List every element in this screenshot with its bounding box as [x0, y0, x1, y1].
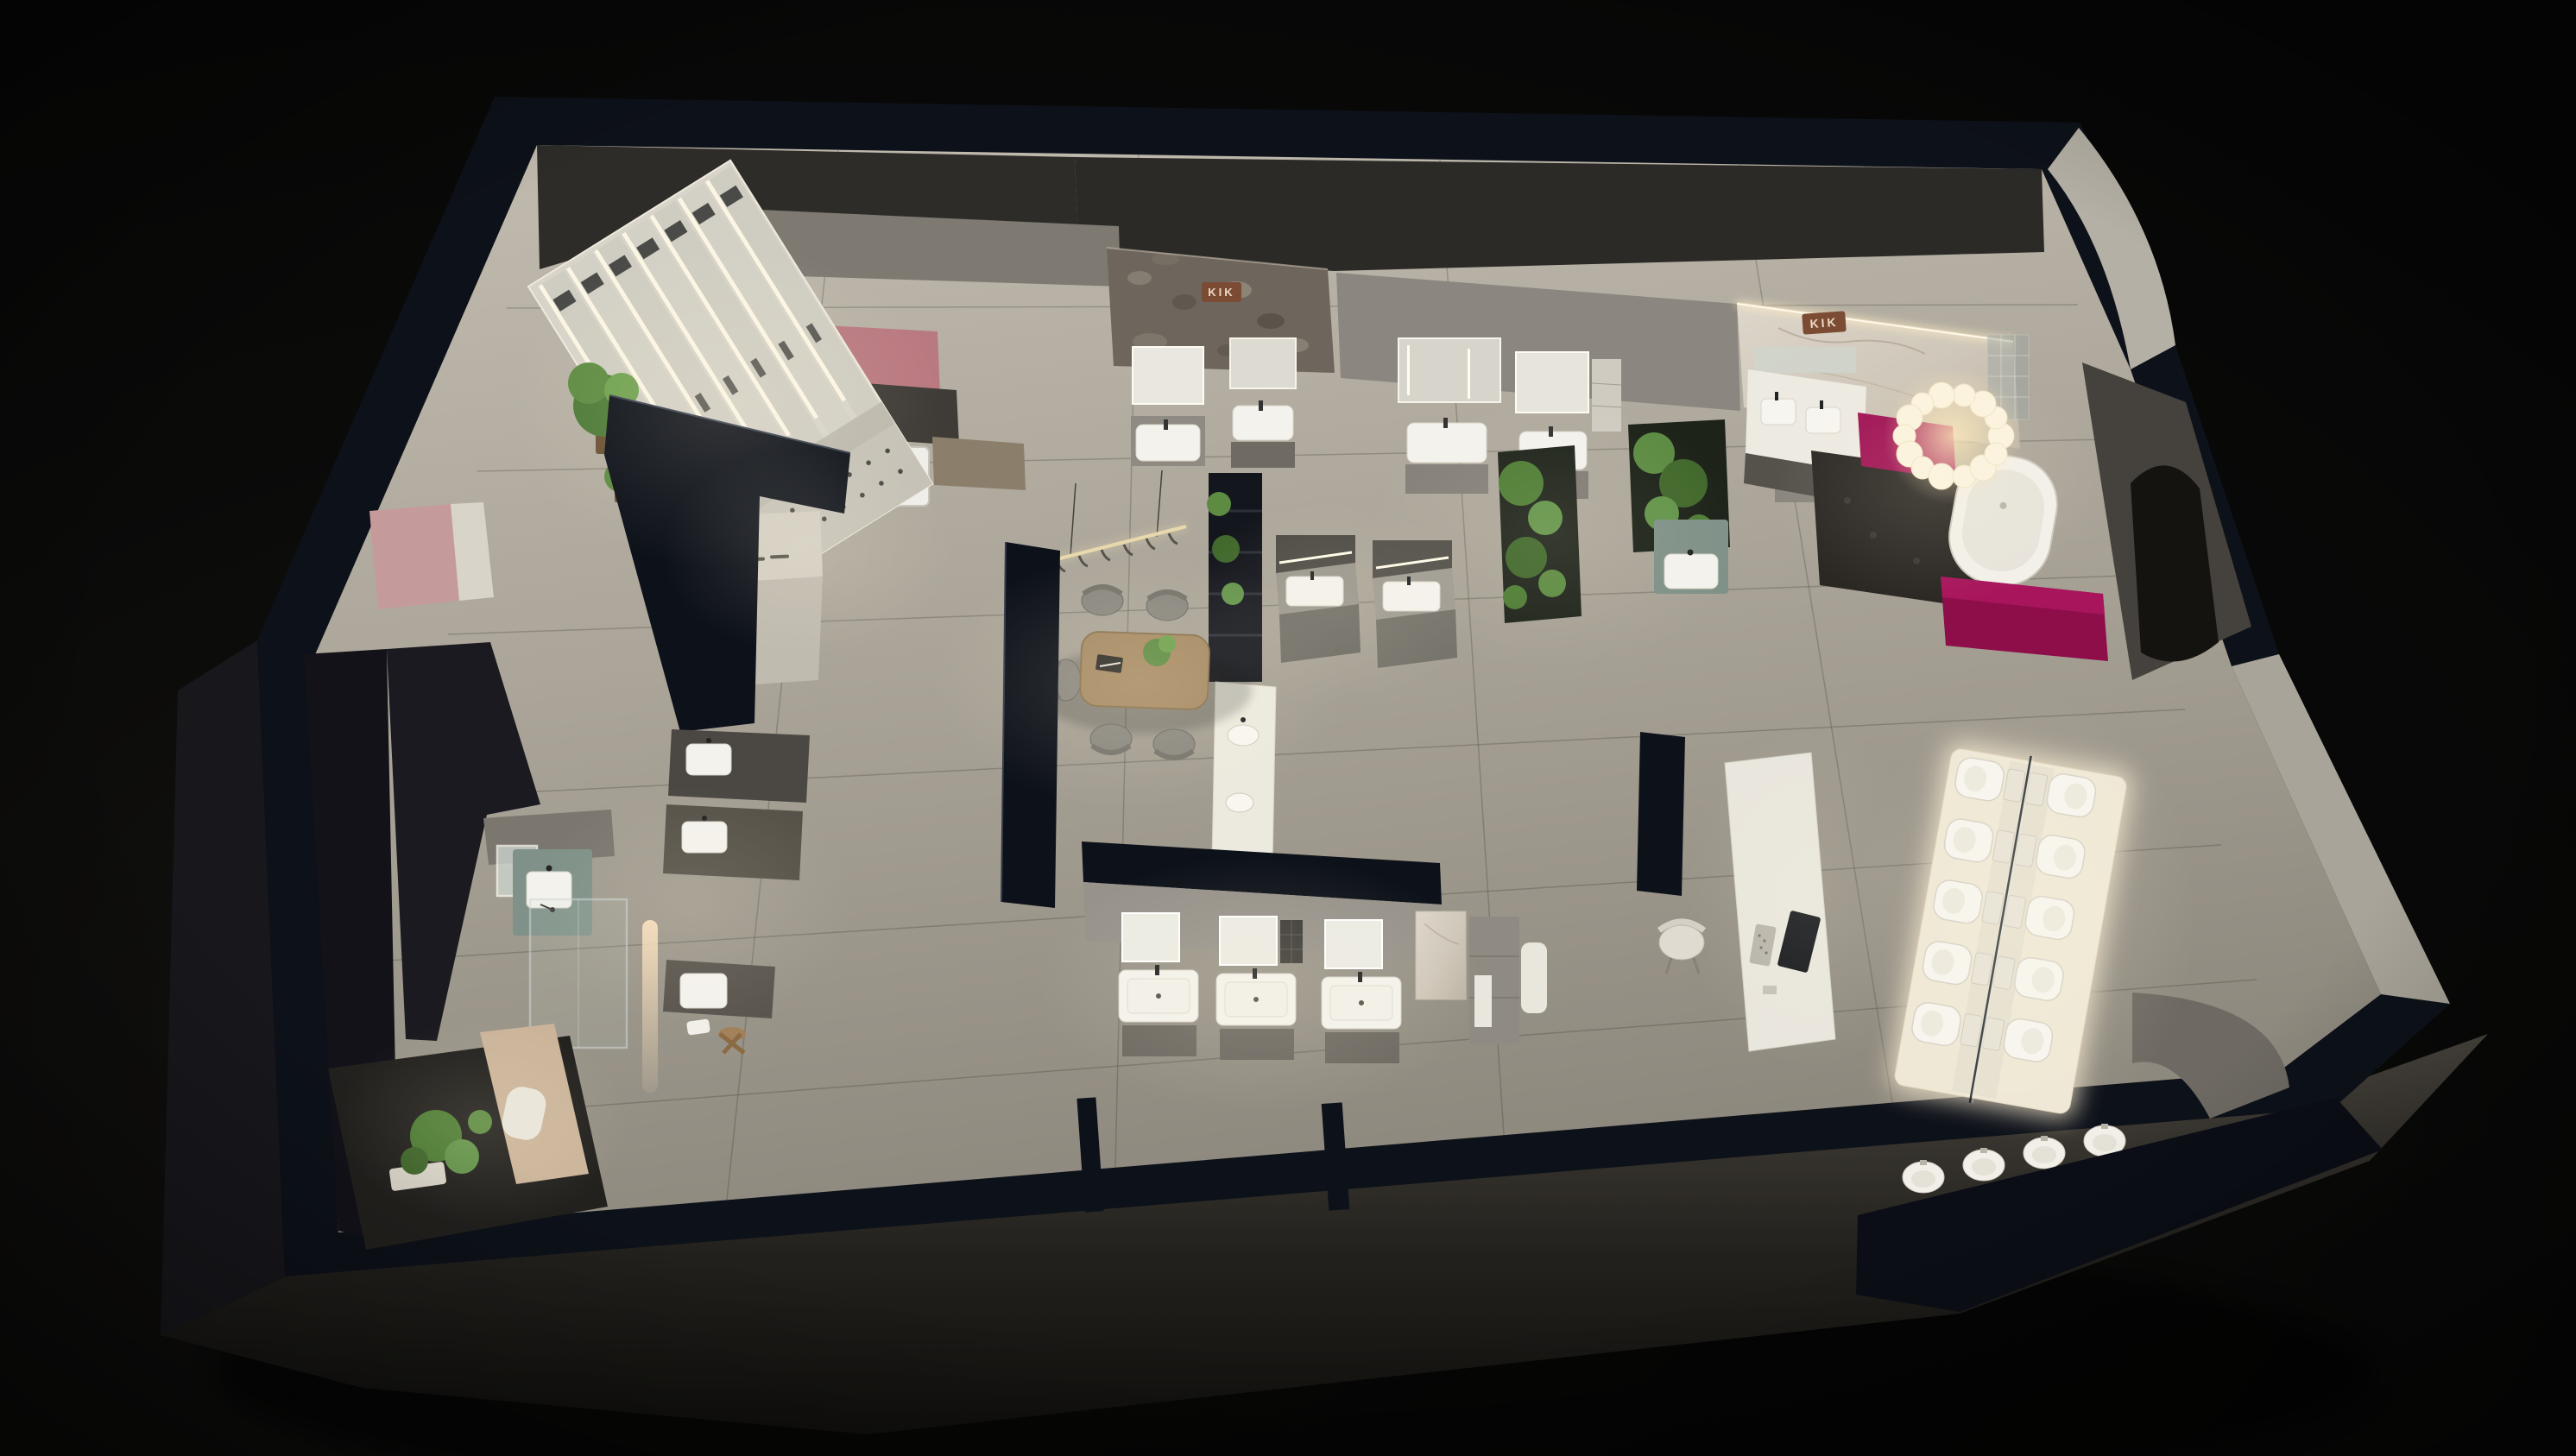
scene-canvas: KIK	[0, 0, 2576, 1456]
showroom-render: KIK	[0, 0, 2576, 1456]
vignette-overlay	[0, 0, 2576, 1456]
